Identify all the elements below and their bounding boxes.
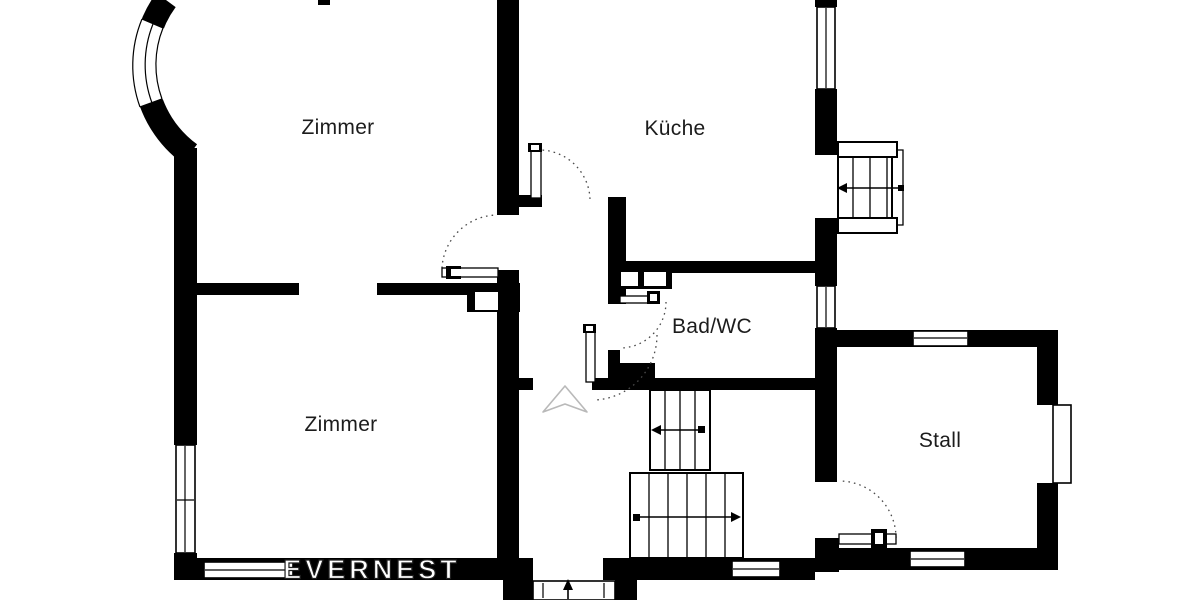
staircase-exterior [837, 142, 904, 233]
window-stall-bottom [910, 551, 965, 567]
window-right-top [817, 7, 835, 89]
staircase-lower [630, 473, 743, 558]
window-right-mid [817, 286, 835, 328]
room-label-kueche: Küche [644, 117, 705, 141]
entrance [533, 579, 615, 600]
bay-window [133, 0, 190, 154]
window-bottom-left [204, 562, 293, 578]
window-stall-top [913, 331, 968, 346]
walls [174, 0, 1058, 600]
window-left [176, 445, 195, 553]
room-label-zimmer-top: Zimmer [302, 116, 375, 140]
door-bad-wc [620, 291, 666, 348]
door-stall [839, 481, 896, 548]
floor-plan-drawing [0, 0, 1200, 600]
door-kueche [528, 143, 590, 199]
watermark-evernest: EVERNEST [283, 555, 461, 586]
room-label-zimmer-bottom: Zimmer [305, 413, 378, 437]
direction-triangle-icon [543, 386, 587, 412]
window-bottom-right [732, 561, 780, 577]
door-zimmer-top [442, 215, 498, 279]
room-label-stall: Stall [919, 429, 961, 453]
room-label-bad-wc: Bad/WC [672, 315, 752, 339]
staircase-upper [650, 390, 710, 470]
floor-plan: Zimmer Küche Bad/WC Zimmer Stall EVERNES… [0, 0, 1200, 600]
stall-side-door-panel [1053, 405, 1071, 483]
